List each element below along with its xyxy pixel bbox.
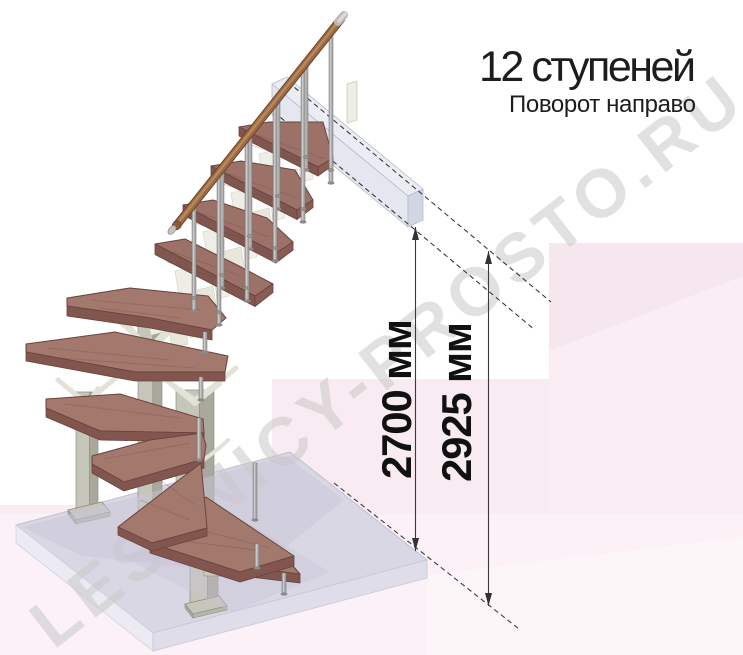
svg-text:Поворот направо: Поворот направо [509,91,696,118]
svg-text:2700 мм: 2700 мм [373,319,420,479]
svg-text:2925 мм: 2925 мм [433,322,480,482]
svg-text:12 ступеней: 12 ступеней [479,43,696,91]
